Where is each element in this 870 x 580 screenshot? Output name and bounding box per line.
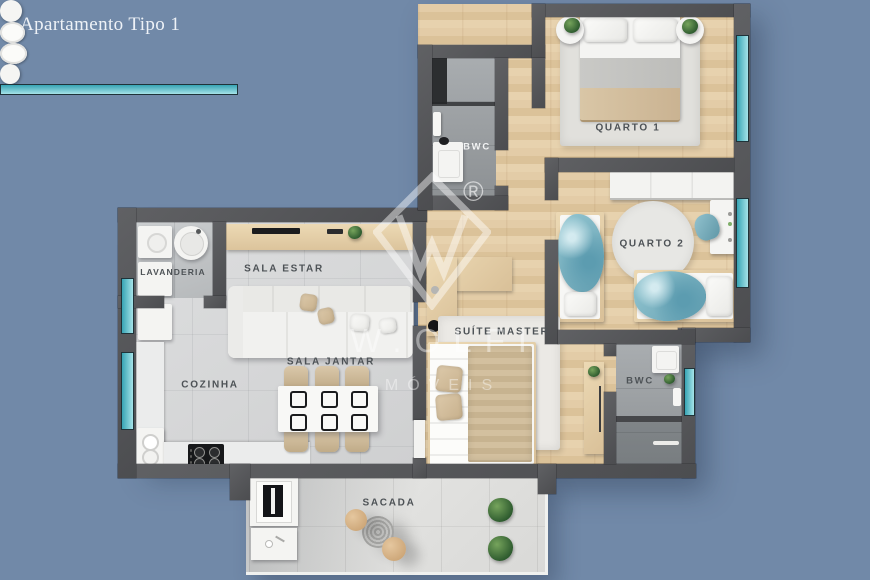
grill-handle-icon [271, 488, 275, 514]
balcony-sink-icon [265, 540, 273, 548]
wall [413, 458, 426, 478]
wall [532, 4, 750, 17]
sofa-pillow-white-1 [349, 313, 369, 332]
quarto1-pillow-left [583, 18, 627, 42]
wall [495, 58, 508, 150]
burner-icon [194, 447, 205, 458]
wall [532, 58, 545, 108]
desk-knob-icon [728, 238, 732, 242]
wall [545, 158, 734, 172]
wall [413, 326, 426, 420]
quarto2-window [736, 198, 749, 288]
bwc-social-shower-divider [432, 102, 496, 106]
bwc-suite-shower-arm [653, 441, 679, 445]
suite-bed-blanket [468, 346, 532, 462]
bwc-suite-toilet [0, 43, 27, 64]
dining-chair [284, 430, 308, 452]
tv-icon [252, 228, 300, 234]
placemat-icon [351, 414, 368, 431]
dining-chair [315, 366, 339, 388]
room-label-lavanderia: LAVANDERIA [140, 267, 205, 277]
wall [118, 208, 136, 478]
sofa-pillow-white-2 [378, 317, 397, 334]
room-label-cozinha: COZINHA [181, 380, 238, 391]
quarto2-bed-bottom-pillow [706, 276, 732, 316]
dining-chair [345, 430, 369, 452]
room-label-sala-estar: SALA ESTAR [244, 264, 324, 275]
bwc-suite-sink [652, 346, 679, 373]
laundry-washer [138, 226, 172, 258]
quarto1-bed-runner [580, 58, 680, 90]
balcony-stool-2 [382, 537, 406, 561]
balcony-sliding-door [0, 84, 238, 95]
room-label-sacada: SACADA [363, 498, 416, 509]
bwc-suite-toilet-tank [673, 388, 681, 406]
wall [413, 222, 426, 302]
sofa-armrest [228, 286, 243, 358]
quarto2-wardrobe [610, 172, 734, 200]
desk-knob-icon [728, 222, 732, 226]
bwc-suite-window [684, 368, 695, 416]
dining-chair [284, 366, 308, 388]
kitchen-fridge [138, 304, 172, 340]
burner-icon [209, 447, 220, 458]
room-label-quarto2: QUARTO 2 [619, 239, 684, 250]
room-label-bwc-suite: BWC [626, 376, 654, 387]
laundry-window [121, 278, 134, 334]
wall [558, 330, 695, 344]
bwc-social-vanity [433, 142, 463, 182]
wall [118, 208, 427, 222]
bwc-social-toilet-tank [433, 112, 441, 136]
wall [604, 392, 616, 464]
placemat-icon [321, 391, 338, 408]
balcony-faucet-icon [275, 536, 285, 543]
wall [532, 4, 545, 58]
washer-lid-icon [147, 233, 167, 253]
sink-faucet-icon [196, 229, 201, 234]
floor-plan: QUARTO 1 QUARTO 2 BWC LAVANDERIA SALA ES… [0, 0, 870, 580]
bwc-social-shower-niche [432, 58, 447, 104]
wall [604, 344, 616, 356]
bwc-social-shower-head-icon [0, 0, 22, 22]
dining-chair [345, 366, 369, 388]
quarto1-window [736, 35, 749, 142]
quarto1-pillow-right [633, 18, 677, 42]
dining-chair [315, 430, 339, 452]
bwc-social-faucet-icon [439, 137, 449, 145]
laundry-round-sink [174, 226, 208, 260]
bwc-suite-divider [616, 416, 682, 422]
wall [538, 464, 556, 494]
sink-basin-icon [656, 351, 677, 370]
kitchen-sink-unit [137, 428, 164, 466]
desk-knob-icon [728, 212, 732, 216]
room-label-quarto1: QUARTO 1 [595, 123, 660, 134]
balcony-stool-1 [345, 509, 367, 531]
cooktop-knob-icon [190, 455, 193, 458]
wall [545, 158, 558, 200]
sofa-pillow-beige-1 [299, 293, 318, 312]
soundbar-icon [327, 229, 343, 234]
bwc-suite-shower-head-icon [0, 64, 20, 84]
balcony-grill-unit [250, 476, 298, 526]
vanity-basin-icon [438, 150, 460, 178]
kitchen-window [121, 352, 134, 430]
page-title: Apartamento Tipo 1 [20, 14, 180, 36]
suite-pillow-1 [435, 365, 464, 394]
quarto1-bed-blanket [580, 88, 680, 122]
wall [213, 222, 226, 300]
cabinet-handle-icon [599, 386, 601, 432]
wall [118, 464, 696, 478]
suite-door [414, 420, 425, 458]
cooktop-knob-icon [190, 449, 193, 452]
sink-basin-icon [180, 232, 204, 256]
room-label-sala-jantar: SALA JANTAR [287, 357, 375, 368]
wall [204, 296, 226, 308]
wall [418, 45, 432, 210]
room-label-bwc-social: BWC [463, 142, 491, 153]
wall [230, 464, 250, 500]
placemat-icon [290, 414, 307, 431]
quarto2-bed-left-pillow [564, 292, 596, 316]
suite-pillow-2 [435, 393, 463, 421]
placemat-icon [290, 391, 307, 408]
placemat-icon [351, 391, 368, 408]
room-label-suite-master: SUÍTE MASTER [455, 327, 550, 338]
placemat-icon [321, 414, 338, 431]
wall [418, 45, 545, 58]
balcony-sink-unit [251, 528, 297, 560]
